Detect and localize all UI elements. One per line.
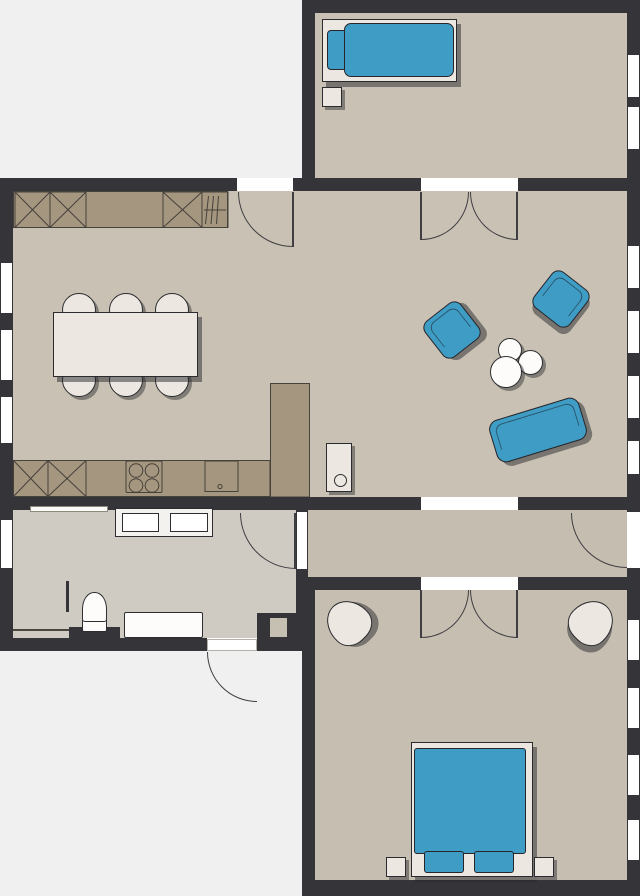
- window: [1, 520, 12, 568]
- bathtub: [124, 612, 203, 638]
- door-leaf: [420, 590, 422, 638]
- window: [1, 330, 12, 380]
- door-leaf: [294, 513, 296, 569]
- single-bed-mattress: [344, 23, 454, 77]
- opening-living-corridor: [421, 497, 518, 510]
- window: [1, 397, 12, 443]
- cabinet-knob-icon: [334, 474, 347, 487]
- peninsula-counter: [271, 384, 310, 498]
- nightstand: [386, 857, 406, 877]
- entrance-door-leaf: [207, 639, 257, 651]
- window: [628, 688, 639, 728]
- door-leaf: [516, 590, 518, 638]
- door-opening-corridor-bedroom: [421, 577, 518, 590]
- window: [628, 311, 639, 353]
- window: [628, 246, 639, 288]
- door-opening-topbedroom-living: [421, 178, 518, 191]
- toilet-bowl: [82, 592, 107, 622]
- window: [628, 755, 639, 795]
- window: [1, 263, 12, 313]
- window: [628, 441, 639, 474]
- nightstand: [534, 857, 554, 877]
- wall-top: [302, 0, 640, 13]
- wall-shelf: [30, 506, 108, 512]
- dining-table: [53, 312, 198, 377]
- door-opening-kitchen-exterior: [237, 178, 293, 191]
- dryer-drum: [170, 513, 208, 532]
- window: [628, 55, 639, 97]
- window: [628, 620, 639, 660]
- window: [628, 376, 639, 418]
- window: [628, 820, 639, 860]
- bed-pillow: [474, 851, 514, 873]
- door-leaf: [420, 192, 422, 240]
- wall-shower-partition: [66, 581, 69, 612]
- wall-corner-inset: [270, 618, 287, 637]
- shower-line: [13, 629, 69, 631]
- washer-dryer-unit: [115, 508, 213, 537]
- washer-drum: [122, 513, 159, 532]
- door-leaf: [292, 192, 294, 247]
- wall-topروom-left: [302, 0, 315, 191]
- wall-mid-upper: [0, 178, 640, 191]
- door-opening-hall-corridor: [297, 512, 307, 569]
- window: [628, 107, 639, 149]
- bed-pillow: [424, 851, 464, 873]
- coffee-table-circle: [490, 356, 522, 388]
- side-cabinet: [326, 443, 352, 492]
- double-bed-blanket: [414, 748, 526, 854]
- floor-plan: [0, 0, 640, 896]
- nightstand: [322, 87, 342, 107]
- door-leaf: [516, 192, 518, 240]
- wall-bedroom-bottom: [302, 880, 640, 896]
- corridor-exterior-door-leaf: [627, 512, 640, 568]
